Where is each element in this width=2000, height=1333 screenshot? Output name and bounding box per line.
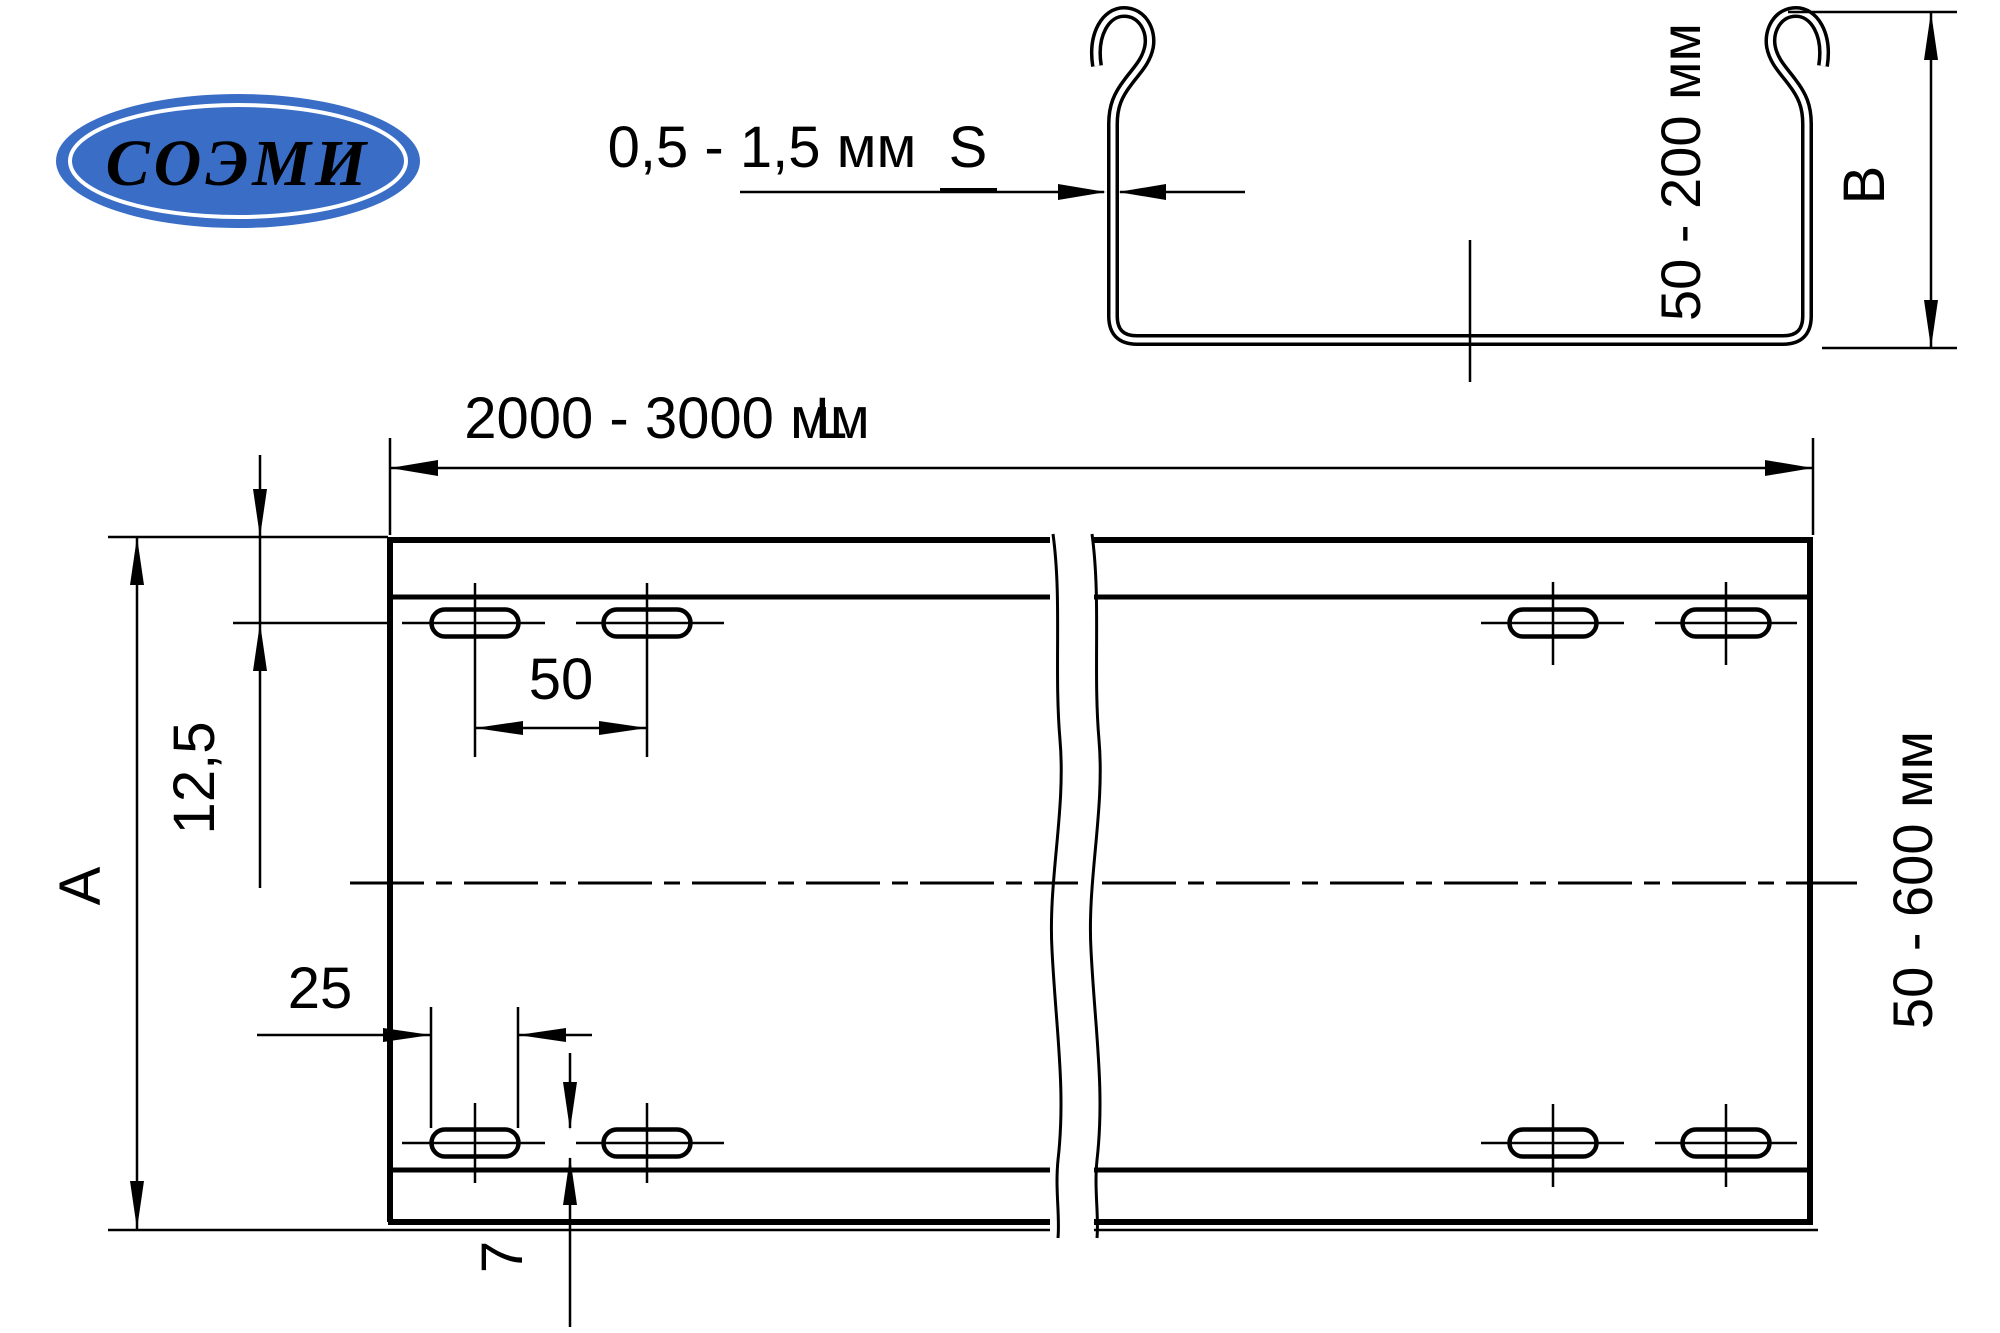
- spacing-arrow-right: [599, 721, 647, 735]
- hole-length-arrow-left: [383, 1028, 431, 1042]
- profile-core: [1096, 12, 1824, 340]
- length-range-label: 2000 - 3000 мм: [464, 386, 869, 451]
- technical-drawing-page: СОЭМИ 0,5 - 1,5 мм S 50 - 200 мм B: [0, 0, 2000, 1333]
- thickness-symbol-label: S: [949, 115, 988, 180]
- offset-arrow-top: [253, 489, 267, 537]
- length-arrow-right: [1765, 460, 1813, 476]
- height-arrow-top: [1924, 12, 1938, 60]
- thickness-arrow-right: [1118, 184, 1166, 200]
- plan-view: 2000 - 3000 мм L A 50 - 600 мм 12,5 50 2…: [48, 386, 1944, 1327]
- profile-outline: [1096, 12, 1824, 340]
- width-arrow-top: [130, 537, 144, 585]
- break-line-right: [1090, 534, 1100, 1238]
- width-range-label: 50 - 600 мм: [1881, 731, 1944, 1029]
- width-symbol-label: A: [48, 866, 113, 905]
- company-logo: СОЭМИ: [56, 94, 420, 228]
- height-range-label: 50 - 200 мм: [1649, 23, 1712, 321]
- hole-length-arrow-right: [518, 1028, 566, 1042]
- offset-arrow-bottom: [253, 623, 267, 671]
- thickness-range-label: 0,5 - 1,5 мм: [608, 115, 917, 180]
- spacing-arrow-left: [475, 721, 523, 735]
- hole-width-arrow-down: [563, 1082, 577, 1130]
- offset-value-label: 12,5: [162, 722, 227, 835]
- cross-section-view: 0,5 - 1,5 мм S 50 - 200 мм B: [608, 12, 1957, 382]
- break-line-left: [1051, 534, 1061, 1238]
- length-arrow-left: [390, 460, 438, 476]
- thickness-arrow-left: [1058, 184, 1106, 200]
- hole-length-value-label: 25: [288, 956, 353, 1021]
- width-arrow-bottom: [130, 1181, 144, 1229]
- height-symbol-label: B: [1832, 166, 1897, 205]
- hole-width-arrow-up: [563, 1157, 577, 1205]
- cable-tray-drawing: СОЭМИ 0,5 - 1,5 мм S 50 - 200 мм B: [0, 0, 2000, 1333]
- spacing-value-label: 50: [529, 647, 594, 712]
- logo-text: СОЭМИ: [106, 127, 371, 200]
- height-arrow-bottom: [1924, 300, 1938, 348]
- hole-width-value-label: 7: [470, 1241, 535, 1273]
- length-symbol-label: L: [815, 386, 847, 451]
